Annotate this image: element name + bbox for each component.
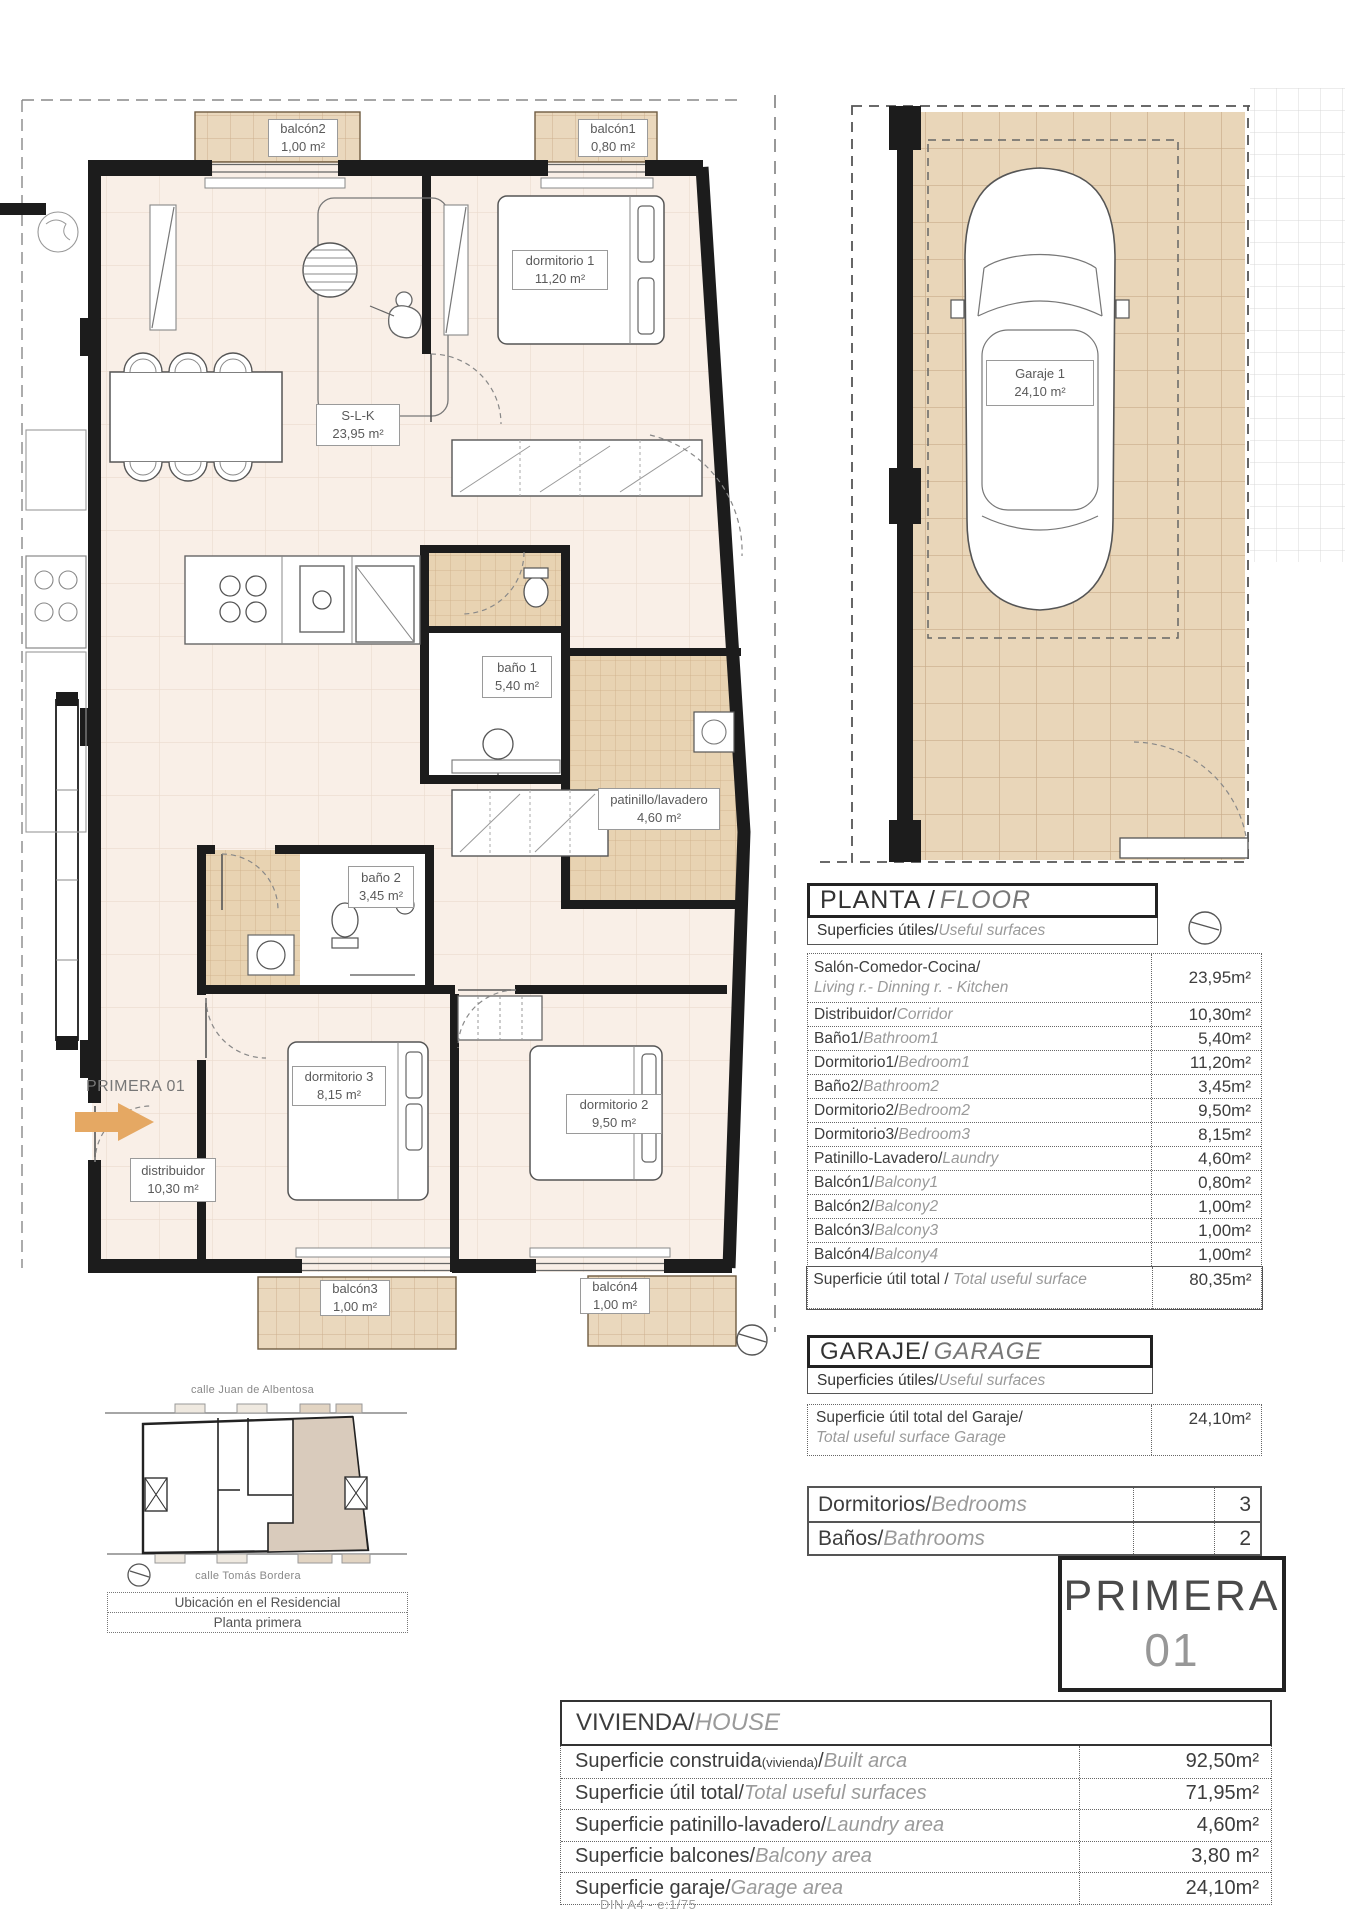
room-label-distribuidor: distribuidor10,30 m²	[130, 1158, 216, 1202]
sheet-scale-note: DIN A4 - e:1/75	[600, 1897, 696, 1912]
planta-title-es: PLANTA /	[820, 886, 936, 915]
room-label-dormitorio2: dormitorio 29,50 m²	[566, 1094, 662, 1134]
table-row: Superficie balcones/Balcony area 3,80 m²	[561, 1841, 1271, 1873]
plan-sheet: balcón21,00 m² balcón10,80 m² dormitorio…	[0, 0, 1357, 1920]
garaje-total-row: Superficie útil total del Garaje/Total u…	[807, 1404, 1262, 1456]
room-label-dormitorio1: dormitorio 111,20 m²	[512, 250, 608, 290]
table-row: Balcón1/Balcony1 0,80m²	[808, 1170, 1261, 1194]
floor-plan	[0, 100, 744, 1349]
table-row: Baño1/Bathroom1 5,40m²	[808, 1026, 1261, 1050]
street-name-top: calle Juan de Albentosa	[185, 1384, 320, 1396]
table-row: Balcón2/Balcony2 1,00m²	[808, 1194, 1261, 1218]
street-name-bottom: calle Tomás Bordera	[188, 1570, 308, 1582]
planta-section-subtitle: Superficies útiles/ Useful surfaces	[807, 918, 1158, 945]
garage-plan	[820, 88, 1345, 862]
room-label-bano2: baño 23,45 m²	[348, 866, 414, 908]
room-label-garaje1: Garaje 124,10 m²	[986, 360, 1094, 406]
counts-table: Dormitorios/Bedrooms 3 Baños/Bathrooms 2	[807, 1486, 1262, 1556]
table-row: Dormitorios/Bedrooms 3	[809, 1488, 1260, 1521]
garaje-section-title: GARAJE/ GARAGE	[807, 1335, 1153, 1368]
table-row: Superficie útil total/Total useful surfa…	[561, 1778, 1271, 1810]
planta-title-en: FLOOR	[940, 886, 1031, 915]
vivienda-table: Superficie construida(vivienda)/Built ar…	[560, 1746, 1272, 1905]
room-label-balcon2: balcón21,00 m²	[268, 119, 338, 157]
planta-section-title: PLANTA / FLOOR	[807, 883, 1158, 918]
room-label-patinillo: patinillo/lavadero4,60 m²	[598, 788, 720, 830]
room-label-bano1: baño 15,40 m²	[482, 656, 552, 698]
table-row: Patinillo-Lavadero/Laundry 4,60m²	[808, 1146, 1261, 1170]
table-row: Superficie construida(vivienda)/Built ar…	[561, 1746, 1271, 1778]
site-caption: Ubicación en el Residencial Planta prime…	[107, 1592, 408, 1633]
vivienda-section-title: VIVIENDA/ HOUSE	[560, 1700, 1272, 1746]
table-row: Dormitorio3/Bedroom3 8,15m²	[808, 1122, 1261, 1146]
room-label-balcon3: balcón31,00 m²	[320, 1280, 390, 1316]
room-label-balcon4: balcón41,00 m²	[580, 1278, 650, 1314]
entry-label: PRIMERA 01	[86, 1078, 185, 1096]
planta-table: Salón-Comedor-Cocina/Living r.- Dinning …	[807, 953, 1262, 1309]
garaje-section-subtitle: Superficies útiles/ Useful surfaces	[807, 1368, 1153, 1394]
table-row: Distribuidor/Corridor 10,30m²	[808, 1002, 1261, 1026]
table-row: Balcón3/Balcony3 1,00m²	[808, 1218, 1261, 1242]
table-row: Dormitorio2/Bedroom2 9,50m²	[808, 1098, 1261, 1122]
table-row: Baño2/Bathroom2 3,45m²	[808, 1074, 1261, 1098]
room-label-slk: S-L-K23,95 m²	[316, 404, 400, 446]
room-label-dormitorio3: dormitorio 38,15 m²	[292, 1066, 386, 1106]
table-row: Salón-Comedor-Cocina/Living r.- Dinning …	[808, 954, 1261, 1002]
table-row: Balcón4/Balcony4 1,00m²	[808, 1242, 1261, 1266]
table-row: Superficie patinillo-lavadero/Laundry ar…	[561, 1809, 1271, 1841]
room-label-balcon1: balcón10,80 m²	[578, 119, 648, 157]
table-row: Dormitorio1/Bedroom1 11,20m²	[808, 1050, 1261, 1074]
table-row: Baños/Bathrooms 2	[809, 1521, 1260, 1554]
site-plan	[105, 1404, 407, 1586]
table-row-total: Superficie útil total / Total useful sur…	[806, 1266, 1262, 1310]
unit-badge: PRIMERA 01	[1058, 1556, 1286, 1692]
